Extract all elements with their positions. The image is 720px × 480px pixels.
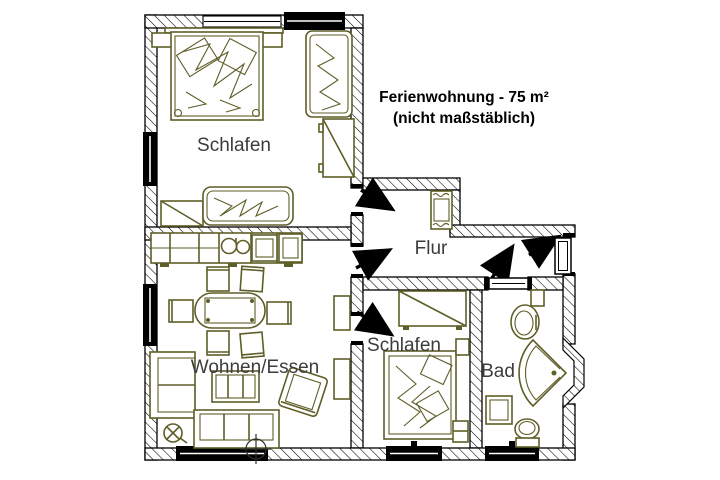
room-bedroom1: Schlafen xyxy=(152,28,354,226)
chair-icon xyxy=(240,332,264,358)
double-bed-icon xyxy=(171,32,263,120)
washing-machine-icon xyxy=(486,396,512,424)
floor-lamp-icon xyxy=(164,424,187,443)
door-swing-arrow-icon xyxy=(357,312,386,331)
dresser-icon xyxy=(161,201,203,226)
room-label-bathroom: Bad xyxy=(481,361,515,382)
chair-icon xyxy=(267,302,291,324)
room-label-living-dining: Wohnen/Essen xyxy=(191,357,320,378)
window-icon xyxy=(386,441,442,461)
window-icon xyxy=(284,12,345,30)
wardrobe-icon xyxy=(399,291,466,330)
dining-table-icon xyxy=(195,293,265,328)
bath-column xyxy=(531,290,544,306)
toilet-icon xyxy=(515,419,539,447)
entrance-door-icon xyxy=(555,238,571,274)
window-icon xyxy=(143,284,157,346)
hall-cabinet-icon xyxy=(431,191,452,229)
room-label-bedroom2: Schlafen xyxy=(367,335,441,356)
corner-shower-icon xyxy=(519,340,566,406)
chair-icon xyxy=(240,266,264,291)
nightstand-icon xyxy=(152,33,172,47)
room-living-dining: Wohnen/Essen xyxy=(150,233,350,464)
plan-title-line2: (nicht maßstäblich) xyxy=(393,110,535,127)
chair-icon xyxy=(169,300,193,322)
plan-title-line1: Ferienwohnung - 75 m² xyxy=(379,89,549,106)
nightstand-icon xyxy=(453,421,468,442)
tv-board-icon xyxy=(334,359,350,399)
room-bathroom: Bad xyxy=(481,290,566,447)
window-icon xyxy=(203,16,281,27)
nightstand-icon xyxy=(262,33,282,47)
washbasin-icon xyxy=(511,305,539,339)
chair-icon xyxy=(207,267,229,291)
room-label-hallway: Flur xyxy=(415,238,448,259)
tv-board-icon xyxy=(334,296,350,330)
room-label-bedroom1: Schlafen xyxy=(197,135,271,156)
single-bed-icon xyxy=(203,187,293,225)
door-swing-arrow-icon xyxy=(529,240,553,255)
door-swing-arrow-icon xyxy=(361,190,387,206)
door-swing-arrow-icon xyxy=(492,252,509,278)
door-swing-arrow-icon xyxy=(356,253,384,268)
chair-icon xyxy=(207,331,229,355)
bath-door-icon xyxy=(489,278,528,289)
nightstand-icon xyxy=(456,339,469,355)
room-bedroom2: Schlafen xyxy=(367,291,469,442)
fridge-icon xyxy=(279,234,302,262)
floor-plan-page: Schlafen xyxy=(0,0,720,480)
double-bed-icon xyxy=(384,351,456,439)
floorplan-svg: Schlafen xyxy=(0,0,720,480)
window-icon xyxy=(143,132,157,186)
single-bed-icon xyxy=(306,31,352,117)
kitchen-counter-icon xyxy=(151,233,302,267)
wardrobe-icon xyxy=(319,119,354,177)
stove-icon xyxy=(252,235,277,261)
plan-title: Ferienwohnung - 75 m² (nicht maßstäblich… xyxy=(379,89,549,127)
